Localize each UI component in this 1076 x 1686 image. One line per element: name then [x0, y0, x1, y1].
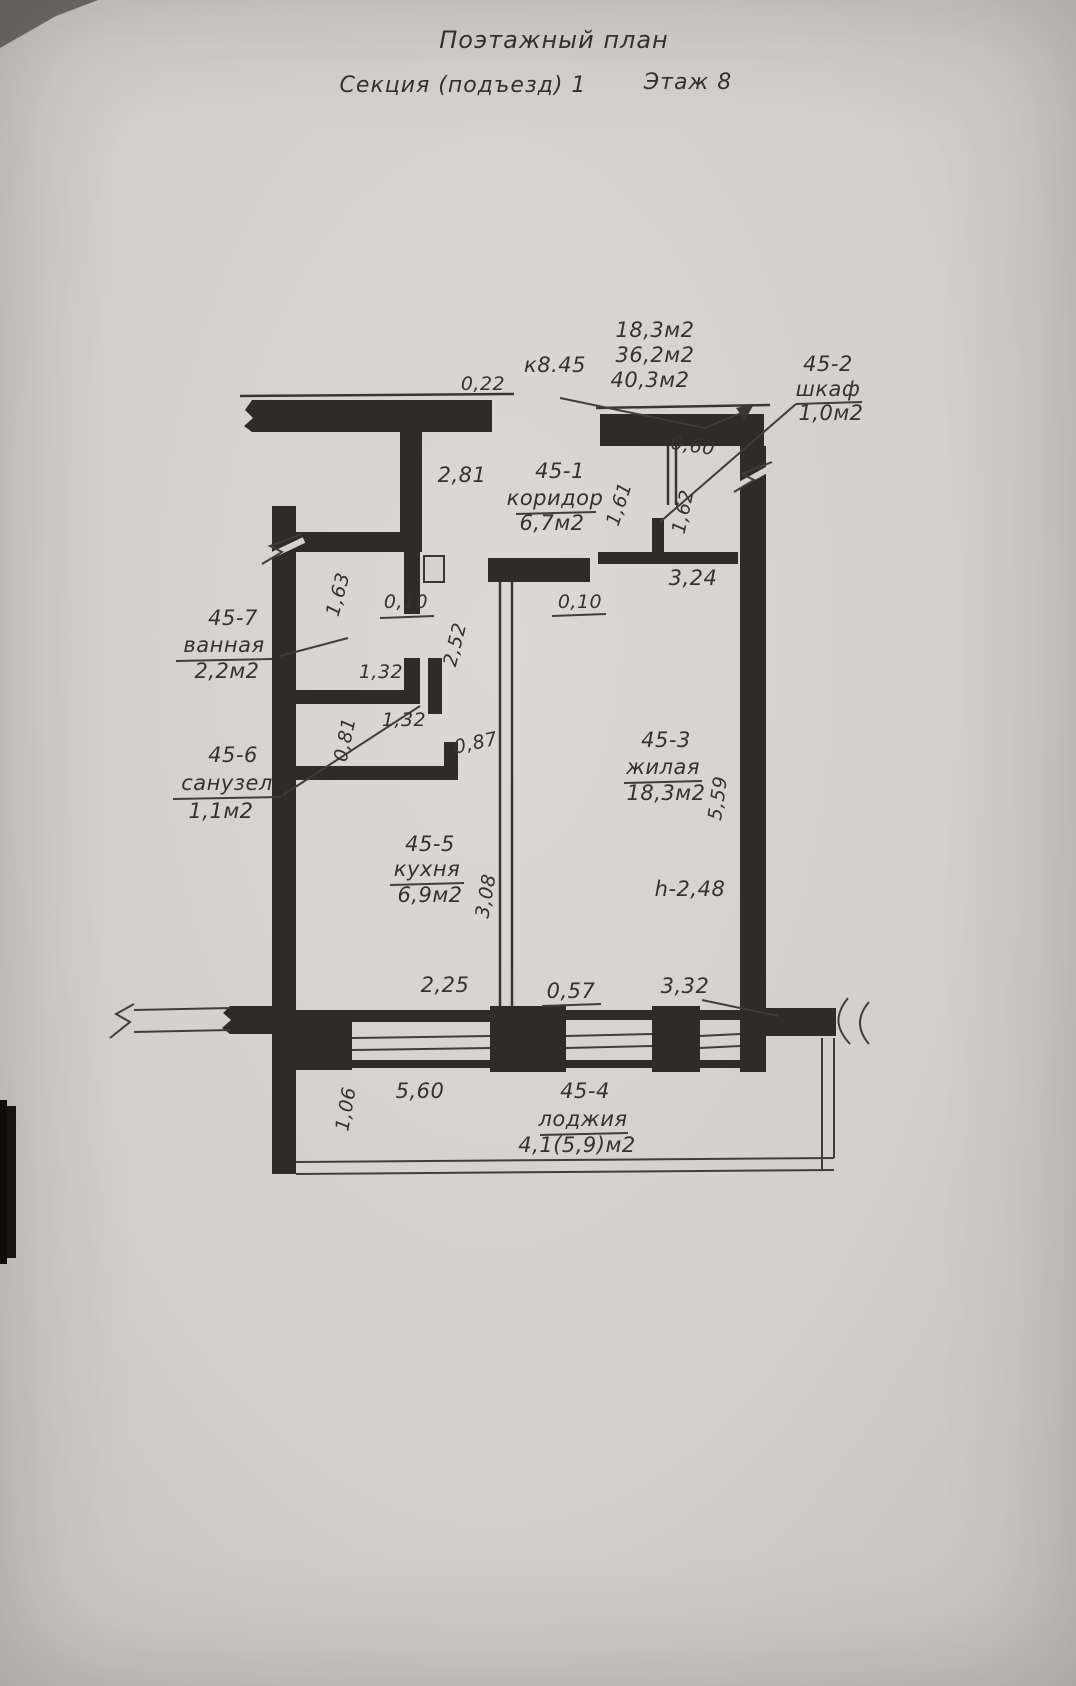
- window-kitchen-glass-2: [352, 1048, 490, 1050]
- window-living-glass-2: [700, 1046, 740, 1048]
- dim-closet-depth-left: 1,61: [602, 480, 637, 529]
- room-wc-id: 45-6: [208, 743, 258, 767]
- dim-corridor-width: 2,81: [438, 463, 487, 487]
- floor-label: Этаж 8: [643, 70, 732, 95]
- area-summary-1: 18,3м2: [616, 318, 695, 342]
- wall-bath-wc-divider: [296, 690, 420, 704]
- window-balcony-glass-2: [566, 1046, 652, 1048]
- room-bath-name: ванная: [183, 633, 264, 657]
- room-loggia-name: лоджия: [538, 1107, 628, 1131]
- section-label: Секция (подъезд) 1: [340, 73, 587, 98]
- dark-edge-strip-inner: [0, 1100, 7, 1264]
- parapet-bottom-a: [296, 1158, 834, 1162]
- area-summary-3: 40,3м2: [611, 368, 690, 392]
- room-wc-area: 1,1м2: [188, 799, 253, 823]
- underline-notch-living: [552, 614, 606, 616]
- apartment-ref: к8.45: [524, 353, 586, 377]
- dim-kitchen-length: 3,08: [471, 872, 500, 919]
- dim-closet-depth-right: 1,62: [668, 488, 699, 536]
- arm-left-line-2: [134, 1030, 230, 1032]
- area-summary-2: 36,2м2: [616, 343, 695, 367]
- room-corridor-id: 45-1: [535, 459, 585, 483]
- room-bath-area: 2,2м2: [194, 659, 259, 683]
- wall-right-outer: [740, 446, 766, 1010]
- wall-wc-south: [296, 766, 458, 780]
- room-closet-id: 45-2: [803, 352, 853, 376]
- dim-kitchen-strip: 2,52: [439, 620, 471, 668]
- room-bath-id: 45-7: [208, 606, 258, 630]
- wall-living-nw-stub: [488, 558, 590, 582]
- wall-topleft: [244, 400, 492, 432]
- photo-artifacts: [0, 0, 98, 1264]
- pier-right: [652, 1006, 700, 1072]
- wall-closet-south-stub: [652, 518, 664, 552]
- right-break-arc-1: [838, 998, 850, 1044]
- window-kitchen-top: [352, 1010, 490, 1022]
- dim-bath-width-lower: 1,32: [382, 709, 426, 731]
- underline-notch-bath: [380, 616, 434, 618]
- dim-wc-length: 0,81: [330, 716, 361, 764]
- wall-corridor-west: [400, 432, 422, 532]
- window-balcony-sill: [566, 1060, 652, 1068]
- wall-bath-east-lower: [404, 658, 420, 690]
- room-kitchen-name: кухня: [394, 857, 460, 881]
- dim-balcony-door: 0,57: [547, 979, 596, 1003]
- room-closet-name: шкаф: [796, 377, 861, 401]
- room-loggia-area: 4,1(5,9)м2: [518, 1133, 635, 1157]
- window-wall: [110, 998, 869, 1072]
- right-break-arc-2: [860, 1002, 869, 1044]
- ceiling-height: h-2,48: [655, 877, 726, 901]
- dim-kitchen-door: 0,87: [452, 728, 500, 759]
- pier-left: [296, 1010, 352, 1070]
- dark-corner: [0, 0, 98, 48]
- dim-bath-width-upper: 1,32: [359, 661, 403, 683]
- dim-bath-length: 1,63: [322, 570, 355, 618]
- dim-loggia-depth: 1,06: [331, 1085, 360, 1132]
- parapet-bottom-b: [296, 1170, 834, 1174]
- room-living-name: жилая: [625, 755, 700, 779]
- window-living-sill: [700, 1060, 740, 1068]
- wall-closet-south: [598, 552, 738, 564]
- page-title: Поэтажный план: [439, 26, 669, 54]
- floor-plan-photo: Поэтажный план Секция (подъезд) 1 Этаж 8…: [0, 0, 1076, 1686]
- dim-top-wall-offset: 0,22: [461, 373, 505, 395]
- wall-arm-right: [766, 1008, 836, 1036]
- window-kitchen-glass-1: [352, 1036, 490, 1038]
- window-kitchen-sill: [352, 1060, 490, 1068]
- room-living-area: 18,3м2: [627, 781, 706, 805]
- room-wc-name: санузел: [181, 771, 273, 795]
- dim-corridor-to-wall: 3,24: [669, 566, 718, 590]
- window-living-top: [700, 1010, 740, 1020]
- dim-living-wall-notch: 0,10: [558, 591, 602, 613]
- window-balcony-glass-1: [566, 1034, 652, 1036]
- dim-kitchen-window: 2,25: [421, 973, 470, 997]
- room-corridor-name: коридор: [507, 486, 604, 510]
- right-wall-foot: [740, 1006, 766, 1072]
- room-closet-area: 1,0м2: [798, 401, 863, 425]
- room-kitchen-id: 45-5: [405, 832, 455, 856]
- room-loggia-id: 45-4: [560, 1079, 610, 1103]
- dim-living-window: 3,32: [661, 974, 710, 998]
- dim-living-length: 5,59: [704, 775, 732, 822]
- room-corridor-area: 6,7м2: [519, 511, 584, 535]
- left-break-squiggle: [110, 1004, 134, 1038]
- dim-bath-door-wall: 0,10: [384, 591, 428, 613]
- window-living-glass-1: [700, 1034, 740, 1036]
- door-leaf-bar: [428, 658, 442, 714]
- underline-balcony-door: [542, 1004, 601, 1006]
- dim-loggia-width: 5,60: [396, 1079, 445, 1103]
- wall-left-outer: [272, 506, 296, 1174]
- pier-center: [490, 1006, 566, 1072]
- room-kitchen-area: 6,9м2: [397, 883, 462, 907]
- window-balcony-top: [566, 1010, 652, 1020]
- arm-left-line-1: [134, 1008, 230, 1010]
- room-living-id: 45-3: [641, 728, 691, 752]
- floor-plan-drawing: Поэтажный план Секция (подъезд) 1 Этаж 8…: [0, 0, 1076, 1686]
- door-jamb-square: [424, 556, 444, 582]
